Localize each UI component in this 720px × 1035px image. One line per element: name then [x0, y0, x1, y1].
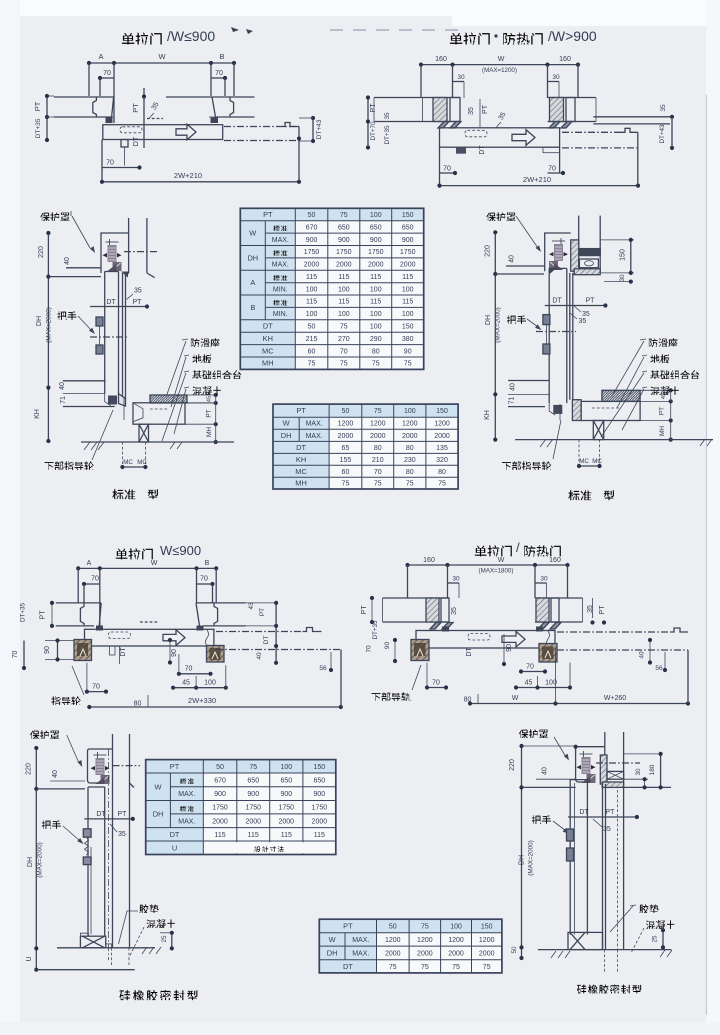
svg-text:W: W: [158, 52, 166, 61]
svg-text:35: 35: [451, 607, 458, 615]
svg-text:2000: 2000: [400, 262, 416, 269]
svg-text:90: 90: [384, 642, 391, 650]
svg-text:PT: PT: [370, 103, 377, 113]
svg-text:35: 35: [468, 107, 475, 115]
svg-text:DT: DT: [552, 298, 562, 305]
svg-text:56: 56: [319, 665, 327, 672]
svg-text:75: 75: [340, 361, 348, 368]
svg-text:2000: 2000: [434, 433, 450, 440]
svg-text:MAX.: MAX.: [306, 433, 323, 440]
svg-text:30: 30: [552, 74, 560, 81]
svg-text:900: 900: [402, 237, 414, 244]
svg-text:70: 70: [526, 664, 534, 671]
svg-text:215: 215: [306, 336, 318, 343]
svg-text:W: W: [498, 557, 505, 564]
svg-text:PT: PT: [263, 210, 273, 219]
svg-text:DT: DT: [170, 830, 180, 839]
svg-text:71: 71: [508, 397, 515, 405]
svg-text:30: 30: [457, 74, 465, 81]
svg-text:70: 70: [92, 684, 100, 691]
svg-text:900: 900: [314, 791, 326, 798]
svg-text:2000: 2000: [304, 262, 320, 269]
svg-text:2000: 2000: [338, 433, 354, 440]
svg-text:KH: KH: [296, 455, 306, 464]
svg-text:U: U: [26, 956, 33, 961]
svg-text:70: 70: [91, 576, 99, 583]
svg-text:MH: MH: [262, 359, 274, 368]
svg-text:40: 40: [509, 383, 516, 391]
svg-text:2W+210: 2W+210: [523, 175, 551, 184]
svg-text:270: 270: [338, 336, 350, 343]
svg-text:900: 900: [370, 237, 382, 244]
svg-text:PT: PT: [206, 409, 213, 417]
svg-text:220: 220: [509, 759, 516, 771]
svg-text:MH: MH: [659, 426, 666, 436]
svg-text:PT: PT: [40, 610, 47, 620]
svg-text:W: W: [512, 695, 519, 702]
svg-text:DT+35: DT+35: [384, 125, 391, 145]
svg-text:DT: DT: [106, 299, 116, 306]
svg-text:1200: 1200: [479, 937, 495, 944]
svg-text:40: 40: [52, 770, 59, 778]
svg-text:75: 75: [421, 964, 429, 971]
svg-text:80: 80: [372, 348, 380, 355]
svg-text:PT: PT: [170, 762, 180, 771]
svg-text:1200: 1200: [402, 421, 418, 428]
svg-text:KH: KH: [484, 410, 491, 420]
svg-text:75: 75: [452, 964, 460, 971]
svg-text:MAX.: MAX.: [272, 237, 289, 244]
svg-text:35: 35: [134, 288, 142, 295]
svg-text:PT: PT: [131, 103, 140, 113]
svg-text:80: 80: [374, 445, 382, 452]
svg-text:65: 65: [342, 445, 350, 452]
svg-text:650: 650: [314, 777, 326, 784]
svg-text:PT: PT: [606, 809, 616, 816]
svg-text:PT: PT: [133, 299, 143, 306]
svg-text:MAX.: MAX.: [352, 937, 369, 944]
svg-text:70: 70: [200, 576, 208, 583]
svg-text:40: 40: [59, 382, 66, 390]
svg-text:B: B: [250, 303, 255, 312]
svg-text:2000: 2000: [417, 950, 433, 957]
svg-text:220: 220: [26, 763, 33, 775]
svg-text:/: /: [516, 540, 520, 555]
svg-text:100: 100: [306, 311, 318, 318]
svg-text:60: 60: [308, 348, 316, 355]
svg-text:DH: DH: [281, 431, 292, 440]
svg-text:2000: 2000: [212, 818, 228, 825]
svg-text:1750: 1750: [400, 249, 416, 256]
svg-text:35: 35: [587, 605, 594, 613]
svg-text:DT: DT: [296, 443, 306, 452]
svg-text:DT: DT: [479, 145, 486, 155]
svg-text:DH: DH: [519, 855, 526, 865]
svg-text:40: 40: [639, 651, 646, 659]
svg-text:DT: DT: [579, 809, 589, 816]
svg-text:1750: 1750: [279, 805, 295, 812]
svg-text:MAX.: MAX.: [352, 950, 369, 957]
svg-text:1750: 1750: [336, 249, 352, 256]
svg-text:25: 25: [652, 935, 659, 943]
svg-text:1750: 1750: [304, 249, 320, 256]
svg-text:155: 155: [340, 457, 352, 464]
svg-text:30: 30: [619, 274, 626, 282]
svg-text:MH: MH: [295, 479, 307, 488]
svg-text:900: 900: [280, 791, 292, 798]
svg-text:75: 75: [342, 481, 350, 488]
svg-text:115: 115: [306, 274, 317, 281]
svg-text:MAX.: MAX.: [178, 791, 195, 798]
svg-text:100: 100: [370, 286, 382, 293]
svg-text:40: 40: [64, 257, 71, 265]
svg-text:150: 150: [620, 249, 627, 261]
svg-text:30: 30: [540, 576, 548, 583]
svg-text:670: 670: [306, 224, 318, 231]
svg-text:135: 135: [436, 445, 448, 452]
svg-text:75: 75: [374, 408, 382, 415]
svg-text:(MAX=2000): (MAX=2000): [495, 307, 502, 343]
svg-text:1200: 1200: [448, 937, 464, 944]
svg-text:100: 100: [370, 324, 382, 331]
svg-text:90: 90: [404, 348, 412, 355]
svg-text:650: 650: [338, 224, 350, 231]
svg-text:75: 75: [438, 481, 446, 488]
svg-text:150: 150: [481, 923, 493, 930]
svg-text:50: 50: [308, 212, 316, 219]
svg-text:100: 100: [402, 286, 414, 293]
svg-text:50: 50: [342, 408, 350, 415]
svg-text:A: A: [250, 278, 255, 287]
svg-text:150: 150: [314, 764, 326, 771]
svg-text:80: 80: [438, 469, 446, 476]
svg-text:115: 115: [314, 832, 325, 839]
svg-text:160: 160: [423, 557, 435, 564]
svg-text:MC: MC: [262, 346, 274, 355]
svg-text:(MAX=2000): (MAX=2000): [36, 842, 43, 878]
svg-text:70: 70: [215, 70, 223, 77]
svg-text:650: 650: [402, 224, 414, 231]
svg-text:PT: PT: [586, 298, 596, 305]
svg-text:2000: 2000: [385, 950, 401, 957]
svg-text:(MAX=2000): (MAX=2000): [46, 307, 53, 343]
svg-text:35: 35: [579, 318, 587, 325]
svg-text:PT: PT: [33, 101, 42, 111]
svg-text:35: 35: [582, 311, 590, 318]
svg-text:2000: 2000: [368, 262, 384, 269]
svg-text:115: 115: [370, 299, 381, 306]
svg-text:MC: MC: [295, 467, 307, 476]
svg-text:100: 100: [280, 764, 292, 771]
svg-text:DT+43: DT+43: [316, 119, 323, 139]
svg-text:PT: PT: [599, 605, 606, 615]
svg-text:DH: DH: [327, 948, 338, 957]
svg-text:(MAX=1200): (MAX=1200): [482, 67, 517, 74]
svg-text:100: 100: [338, 311, 350, 318]
svg-text:2000: 2000: [448, 950, 464, 957]
svg-text:PT: PT: [361, 605, 368, 615]
svg-text:2000: 2000: [336, 262, 352, 269]
svg-text:W: W: [249, 229, 256, 238]
svg-text:75: 75: [404, 361, 412, 368]
svg-text:PT: PT: [482, 104, 489, 114]
svg-text:B: B: [205, 560, 210, 567]
svg-text:DT: DT: [96, 811, 106, 818]
svg-text:DH: DH: [247, 253, 258, 262]
svg-text:DT: DT: [120, 647, 127, 657]
svg-text:180: 180: [649, 764, 656, 775]
svg-text:U: U: [172, 843, 177, 852]
svg-text:75: 75: [249, 764, 257, 771]
svg-text:B: B: [219, 52, 224, 61]
svg-text:115: 115: [338, 299, 349, 306]
svg-text:1200: 1200: [417, 937, 433, 944]
svg-text:115: 115: [370, 274, 381, 281]
svg-text:70: 70: [12, 651, 19, 659]
svg-text:75: 75: [372, 361, 380, 368]
svg-text:DT: DT: [263, 322, 273, 331]
svg-text:MC: MC: [137, 459, 147, 466]
svg-text:MAX.: MAX.: [272, 262, 289, 269]
svg-text:2000: 2000: [279, 818, 295, 825]
svg-text:75: 75: [308, 361, 316, 368]
svg-text:100: 100: [404, 408, 416, 415]
svg-text:115: 115: [214, 832, 225, 839]
svg-text:100: 100: [204, 680, 216, 687]
svg-text:MC: MC: [123, 459, 133, 466]
svg-text:210: 210: [372, 457, 384, 464]
svg-text:2W+330: 2W+330: [188, 696, 216, 705]
svg-text:1750: 1750: [212, 805, 228, 812]
svg-text:75: 75: [483, 964, 491, 971]
svg-text:A: A: [98, 52, 103, 61]
svg-text:90: 90: [506, 644, 513, 652]
svg-text:115: 115: [306, 299, 317, 306]
svg-text:(MAX=2000): (MAX=2000): [528, 840, 535, 876]
svg-text:MIN.: MIN.: [273, 286, 288, 293]
svg-text:900: 900: [338, 237, 350, 244]
svg-text:35: 35: [118, 831, 126, 838]
svg-text:2000: 2000: [479, 950, 495, 957]
svg-text:900: 900: [306, 237, 318, 244]
svg-text:/W>900: /W>900: [548, 28, 597, 44]
svg-text:100: 100: [370, 212, 382, 219]
svg-text:70: 70: [106, 160, 114, 167]
svg-text:MC: MC: [579, 458, 589, 465]
svg-text:(MAX=1800): (MAX=1800): [479, 568, 514, 575]
svg-text:220: 220: [485, 245, 492, 257]
svg-text:W+260: W+260: [604, 695, 626, 702]
svg-text:70: 70: [340, 348, 348, 355]
svg-text:2000: 2000: [402, 433, 418, 440]
svg-text:900: 900: [214, 791, 226, 798]
svg-text:70: 70: [103, 70, 111, 77]
svg-text:A: A: [87, 560, 92, 567]
svg-text:W≤900: W≤900: [160, 543, 201, 558]
svg-text:DT: DT: [343, 962, 353, 971]
svg-text:1750: 1750: [312, 805, 328, 812]
svg-text:60: 60: [342, 469, 350, 476]
svg-text:40: 40: [508, 255, 515, 263]
svg-text:71: 71: [60, 396, 67, 404]
svg-text:DT: DT: [263, 636, 270, 645]
svg-text:W: W: [155, 782, 162, 791]
svg-text:75: 75: [340, 324, 348, 331]
svg-text:100: 100: [450, 923, 462, 930]
svg-text:2000: 2000: [245, 818, 261, 825]
svg-text:1200: 1200: [385, 937, 401, 944]
svg-text:35: 35: [603, 826, 611, 833]
svg-text:MC: MC: [592, 458, 602, 465]
svg-text:35: 35: [660, 104, 667, 112]
svg-text:75: 75: [389, 964, 397, 971]
svg-text:DT: DT: [131, 136, 140, 146]
svg-text:45: 45: [182, 680, 190, 687]
svg-text:DH: DH: [27, 857, 34, 867]
svg-text:W: W: [151, 560, 158, 567]
svg-text:DT+35: DT+35: [35, 118, 42, 138]
svg-text:45: 45: [525, 680, 533, 687]
svg-text:80: 80: [406, 445, 414, 452]
svg-text:70: 70: [548, 166, 556, 173]
svg-text:KH: KH: [263, 334, 273, 343]
svg-text:670: 670: [214, 777, 226, 784]
svg-text:650: 650: [247, 777, 259, 784]
svg-text:115: 115: [402, 299, 413, 306]
svg-text:115: 115: [248, 832, 259, 839]
svg-text:75: 75: [406, 481, 414, 488]
svg-text:80: 80: [406, 469, 414, 476]
svg-text:75: 75: [374, 481, 382, 488]
svg-text:100: 100: [402, 311, 414, 318]
svg-text:DH: DH: [36, 316, 43, 326]
svg-text:PT: PT: [118, 811, 128, 818]
svg-text:90: 90: [44, 646, 51, 654]
svg-text:DT+35: DT+35: [20, 602, 27, 622]
svg-text:290: 290: [370, 336, 382, 343]
svg-text:50: 50: [511, 946, 518, 954]
svg-text:230: 230: [404, 457, 416, 464]
svg-text:W: W: [283, 419, 290, 428]
svg-text:/W≤900: /W≤900: [167, 28, 215, 44]
svg-text:W: W: [329, 935, 336, 944]
svg-text:DH: DH: [485, 315, 492, 325]
svg-text:56: 56: [655, 665, 663, 672]
svg-text:70: 70: [443, 166, 451, 173]
svg-text:50: 50: [308, 324, 316, 331]
svg-text:220: 220: [38, 246, 45, 258]
svg-text:1200: 1200: [434, 421, 450, 428]
svg-text:70: 70: [432, 680, 440, 687]
svg-text:900: 900: [247, 791, 259, 798]
svg-text:45: 45: [207, 396, 213, 402]
svg-text:380: 380: [402, 336, 414, 343]
svg-text:1200: 1200: [370, 421, 386, 428]
svg-text:150: 150: [436, 408, 448, 415]
svg-text:DT: DT: [466, 647, 473, 657]
svg-text:100: 100: [306, 286, 318, 293]
svg-text:75: 75: [421, 923, 429, 930]
svg-text:DT+70: DT+70: [370, 121, 377, 141]
svg-text:160: 160: [549, 557, 561, 564]
svg-text:40: 40: [256, 652, 263, 660]
svg-text:35: 35: [384, 112, 391, 120]
svg-text:W: W: [498, 56, 505, 63]
svg-text:1750: 1750: [245, 805, 261, 812]
svg-text:2000: 2000: [312, 818, 328, 825]
svg-text:115: 115: [402, 274, 413, 281]
svg-text:KH: KH: [34, 409, 41, 419]
svg-text:90: 90: [171, 649, 178, 657]
svg-text:MAX.: MAX.: [178, 818, 195, 825]
svg-text:MH: MH: [206, 427, 213, 437]
svg-text:PT: PT: [343, 921, 353, 930]
svg-text:1200: 1200: [338, 421, 354, 428]
svg-text:40: 40: [542, 767, 549, 775]
svg-text:30: 30: [452, 576, 460, 583]
svg-text:70: 70: [185, 666, 193, 673]
svg-text:30: 30: [635, 768, 642, 776]
svg-text:DH: DH: [153, 810, 164, 819]
svg-text:2W+210: 2W+210: [174, 171, 202, 180]
svg-text:100: 100: [338, 286, 350, 293]
svg-text:650: 650: [280, 777, 292, 784]
svg-text:115: 115: [281, 832, 292, 839]
svg-text:160: 160: [435, 56, 447, 63]
svg-text:PT: PT: [259, 608, 266, 616]
svg-text:75: 75: [340, 212, 348, 219]
svg-text:DT+43: DT+43: [659, 124, 666, 144]
svg-text:150: 150: [402, 212, 414, 219]
svg-text:320: 320: [436, 457, 448, 464]
svg-text:1750: 1750: [368, 249, 384, 256]
svg-text:PT: PT: [659, 407, 666, 415]
svg-text:150: 150: [402, 324, 414, 331]
svg-text:160: 160: [559, 56, 571, 63]
svg-text:25: 25: [161, 935, 168, 943]
svg-text:70: 70: [366, 645, 373, 653]
svg-text:650: 650: [370, 224, 382, 231]
svg-text:MAX.: MAX.: [306, 421, 323, 428]
svg-text:100: 100: [370, 311, 382, 318]
svg-text:PT: PT: [296, 406, 306, 415]
svg-text:2000: 2000: [370, 433, 386, 440]
svg-text:MIN.: MIN.: [273, 311, 288, 318]
svg-text:50: 50: [389, 923, 397, 930]
svg-text:70: 70: [374, 469, 382, 476]
svg-text:115: 115: [338, 274, 349, 281]
svg-text:50: 50: [216, 764, 224, 771]
